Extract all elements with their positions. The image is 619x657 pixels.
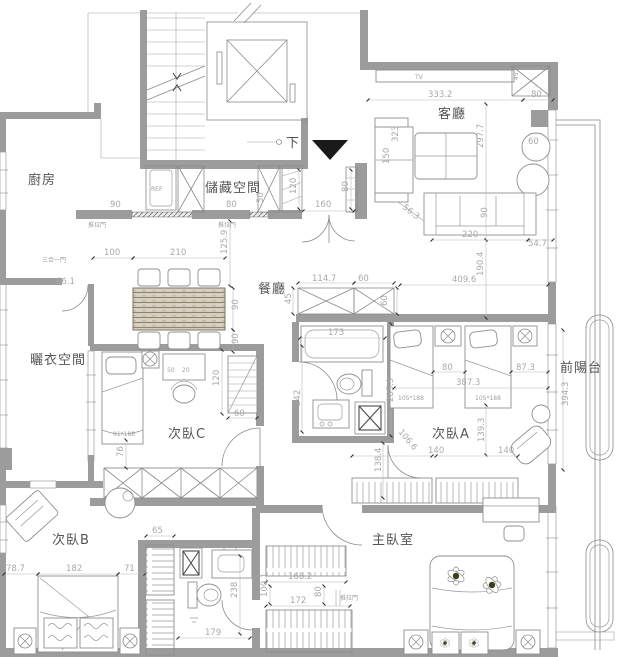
- dim: 114.7: [312, 274, 336, 284]
- dim: 106.6: [396, 428, 419, 453]
- dim: 238: [230, 582, 240, 598]
- dim: 20: [182, 367, 190, 374]
- chair: [173, 385, 195, 403]
- dim: 190.4: [476, 252, 486, 276]
- floor-plan: 下: [0, 0, 619, 657]
- lounge-chair: [5, 489, 59, 542]
- dim: 120: [212, 370, 222, 386]
- dim: 139.3: [477, 418, 487, 442]
- room-kitchen: 廚房: [28, 172, 56, 188]
- dim: 80: [442, 363, 453, 373]
- room-bedroom-b: 次臥B: [52, 532, 90, 548]
- dim: 120: [289, 178, 299, 194]
- dim: 78.7: [6, 564, 25, 574]
- dim: 285.9: [386, 378, 396, 402]
- dim: 210: [170, 248, 186, 258]
- closet-rack: [266, 610, 352, 652]
- dim: 138.4: [374, 448, 384, 472]
- dim: 90: [231, 299, 241, 310]
- sliding-door-kitchen: [132, 212, 192, 217]
- chair: [504, 526, 524, 541]
- dim: 90: [231, 333, 241, 344]
- bedroom-c: [102, 350, 260, 498]
- dim: 100: [104, 248, 120, 258]
- entry-double-door: [302, 215, 355, 242]
- dim: 242: [293, 390, 303, 406]
- dim: 71: [124, 564, 135, 574]
- dim: 80: [314, 586, 324, 597]
- dim: 160: [315, 200, 331, 210]
- dim: 220: [462, 230, 478, 240]
- dim: 66.1: [56, 277, 75, 287]
- room-balcony: 前陽台: [560, 360, 602, 376]
- dim: 50: [256, 192, 266, 203]
- dim: 150: [382, 148, 392, 164]
- utility: [293, 283, 548, 314]
- dim: 140: [498, 446, 514, 456]
- dim: 333.2: [428, 90, 452, 100]
- dim: 323: [391, 126, 401, 142]
- room-bedroom-c: 次臥C: [168, 426, 206, 442]
- stair-core: 下: [147, 12, 307, 160]
- dim: 80: [531, 90, 542, 100]
- dim: 56.3: [400, 202, 421, 222]
- room-drying: 曬衣空間: [30, 352, 86, 368]
- ref-label: REF: [151, 186, 163, 193]
- master-door: [322, 505, 362, 545]
- dining-table: [133, 288, 225, 330]
- dim: 409.6: [452, 275, 476, 285]
- tv-label: TV: [414, 74, 424, 81]
- dim: 60: [528, 137, 539, 147]
- sliding-door-label: 推拉門: [340, 594, 358, 602]
- dim: 125.9: [220, 230, 230, 254]
- dim: 60: [380, 295, 390, 306]
- toilet: [197, 584, 221, 606]
- sliding-door-label: 推拉門: [88, 221, 106, 229]
- bed-size-label: 105*188: [398, 395, 424, 402]
- dim: 100.1: [260, 573, 270, 597]
- toilet: [337, 374, 361, 394]
- dim: 173: [328, 328, 344, 338]
- room-master: 主臥室: [372, 532, 414, 548]
- dim: 76: [116, 446, 126, 457]
- pillow: [80, 618, 113, 648]
- dim: 45: [513, 72, 520, 80]
- side-table: [532, 405, 550, 423]
- armchair: [508, 423, 554, 467]
- dim: 140: [428, 446, 444, 456]
- dim: 297.7: [476, 124, 486, 148]
- room-bedroom-a: 次臥A: [432, 426, 470, 442]
- wardrobe: [352, 478, 432, 503]
- bedroom-c-door: [222, 428, 260, 466]
- dim: 45: [284, 293, 294, 304]
- pillow: [44, 618, 77, 648]
- bathroom-1: [299, 324, 391, 436]
- dim: 65: [152, 526, 163, 536]
- bed-size-label: 91*188: [113, 431, 135, 438]
- entry-marker-icon: [312, 140, 348, 160]
- dim: 54.7: [528, 239, 547, 249]
- round-table: [517, 164, 549, 196]
- dining-room: [62, 221, 233, 352]
- room-living: 客廳: [438, 106, 466, 122]
- stairs-down-label: 下: [286, 136, 300, 151]
- round-table: [105, 488, 135, 518]
- master-bedroom: [322, 498, 540, 654]
- dim: 80: [341, 181, 351, 192]
- sliding-door-label: 推拉門: [218, 221, 236, 229]
- dim: 90: [480, 207, 490, 218]
- sliding-door-storage: [250, 212, 268, 217]
- dim: 60: [234, 409, 245, 419]
- dim: 182: [66, 564, 82, 574]
- kitchen-door: [62, 285, 88, 311]
- bathroom-2-door: [222, 600, 252, 630]
- room-storage: 儲藏空間: [205, 181, 261, 196]
- bath1-door: [299, 362, 337, 400]
- dim: 80: [226, 200, 237, 210]
- desk: [483, 498, 539, 522]
- closet-b: [146, 600, 174, 655]
- floor-plan-canvas: 下: [0, 0, 619, 657]
- dim: 168.2: [288, 572, 312, 582]
- bed-size-label: 105*188: [475, 395, 501, 402]
- triple-door-label: 三合一門: [42, 256, 66, 264]
- tv-console: [376, 70, 514, 82]
- room-dining: 餐廳: [258, 281, 286, 297]
- bedroom-a-door: [388, 445, 421, 478]
- dim: 394.3: [561, 382, 571, 406]
- dim: 387.3: [456, 378, 480, 388]
- dim: 60: [358, 274, 369, 284]
- dim: 172: [290, 596, 306, 606]
- dim: 179: [205, 628, 221, 638]
- dim: 50: [167, 367, 175, 374]
- dim: 90: [110, 200, 121, 210]
- dim: 87.3: [516, 363, 535, 373]
- closet-b: [146, 545, 174, 595]
